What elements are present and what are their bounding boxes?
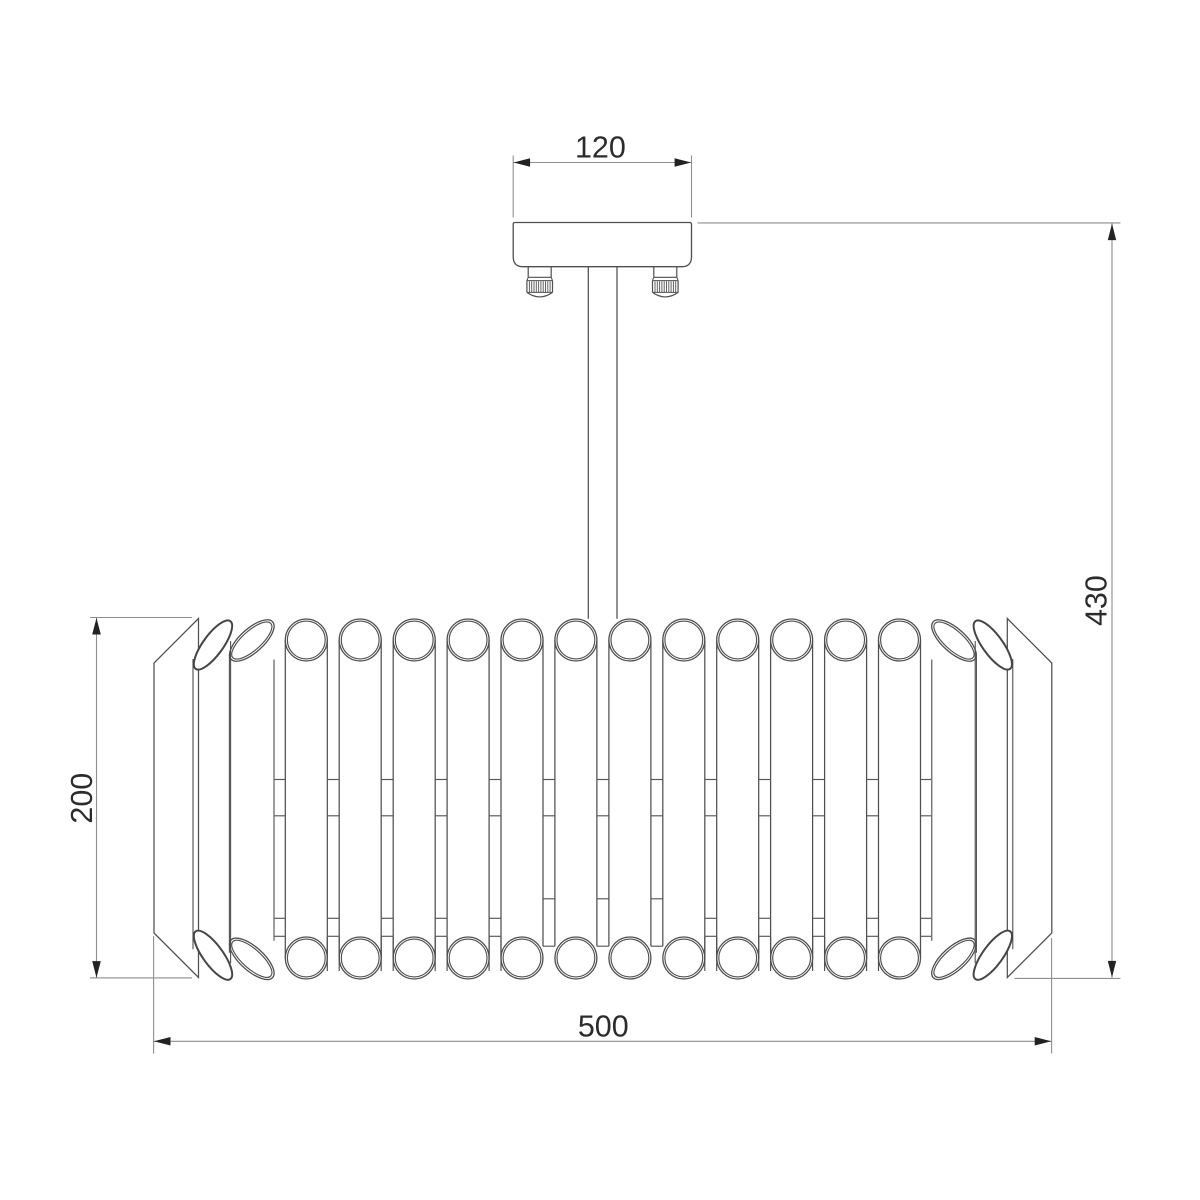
svg-text:500: 500 (578, 1009, 629, 1043)
svg-text:430: 430 (1080, 575, 1114, 626)
svg-text:200: 200 (65, 773, 99, 824)
svg-text:120: 120 (575, 131, 626, 165)
